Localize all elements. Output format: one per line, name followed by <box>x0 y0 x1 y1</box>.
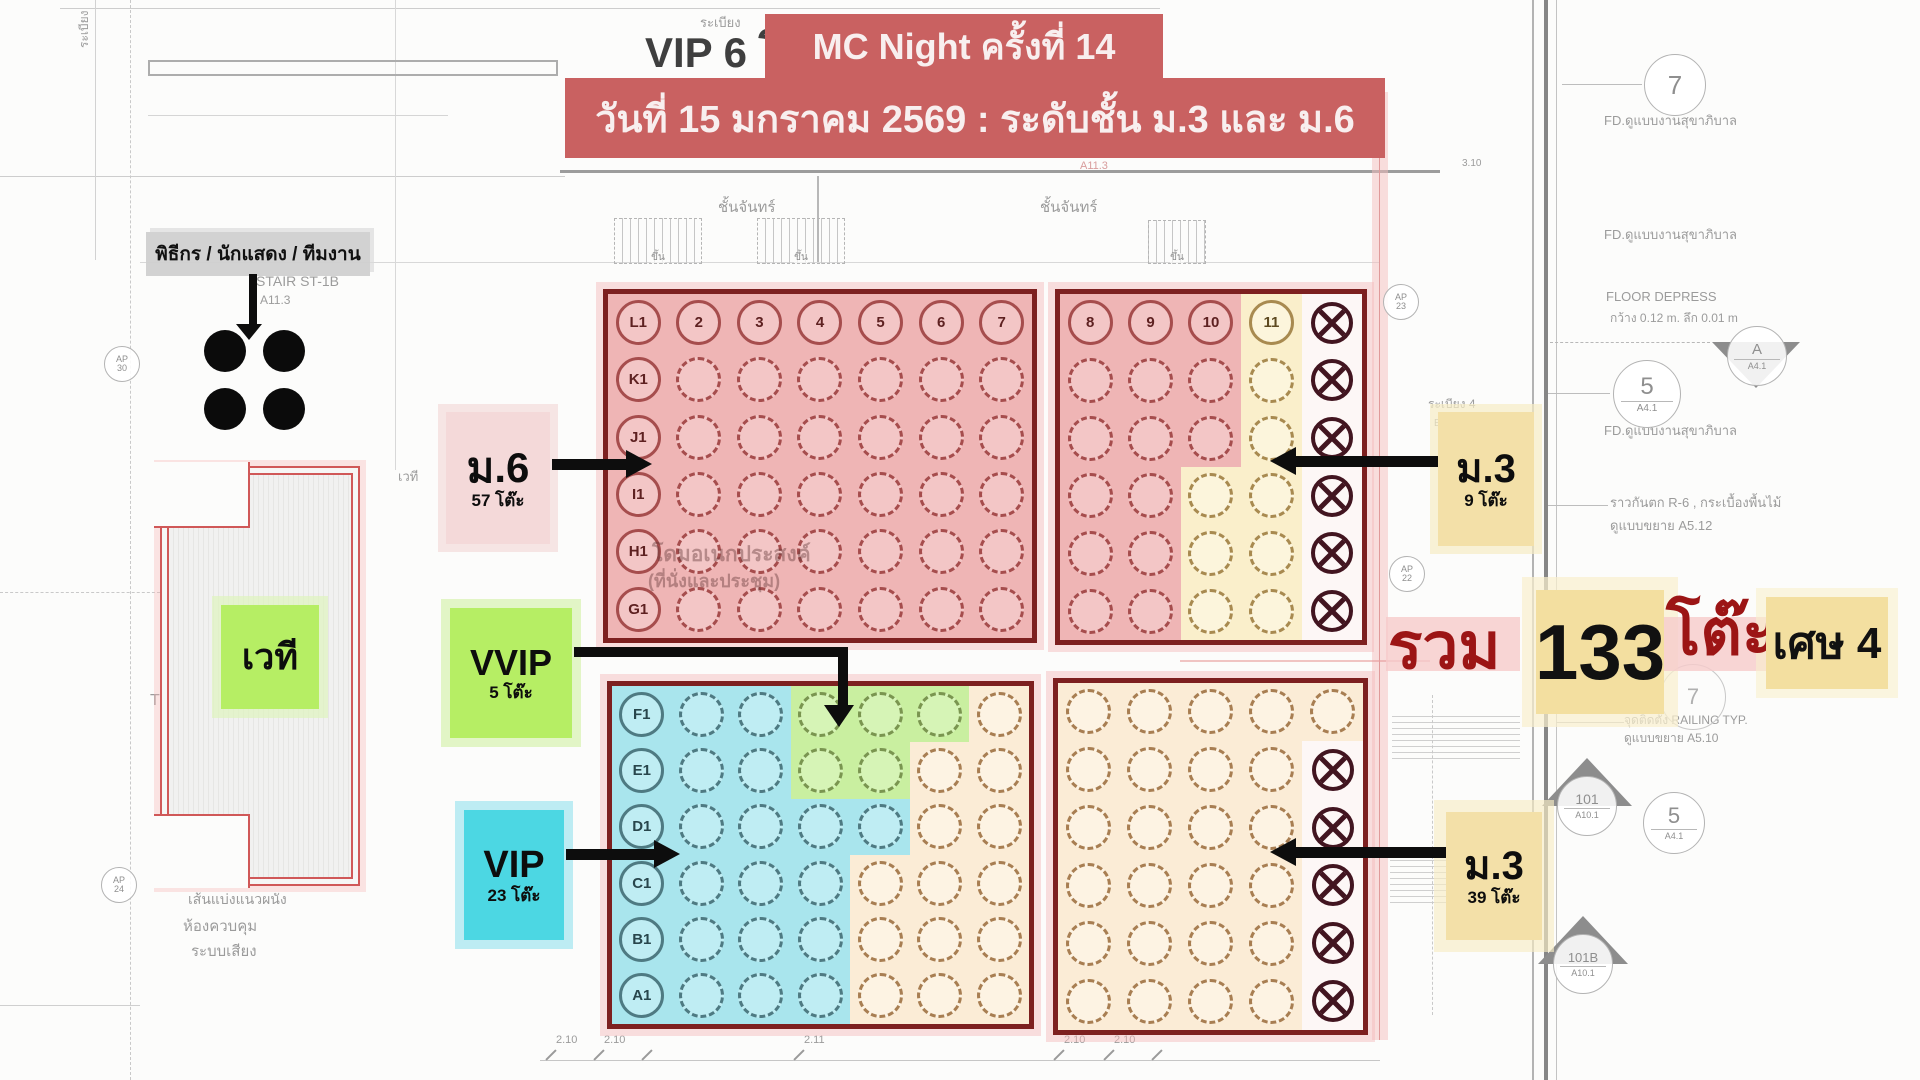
total-prefix: รวม <box>1388 610 1501 684</box>
seat <box>1312 980 1354 1022</box>
plan-line <box>0 1005 140 1006</box>
seat-circle <box>910 855 970 911</box>
seat-circle <box>672 799 732 855</box>
seat <box>798 861 843 906</box>
seat-circle <box>672 686 732 742</box>
seat <box>979 472 1024 517</box>
plan-line <box>540 1060 1380 1061</box>
seat-circle <box>672 911 732 967</box>
seat-4: 4 <box>790 294 851 351</box>
seat-label: 6 <box>937 314 945 331</box>
seat-circle <box>669 466 730 523</box>
seat <box>979 415 1024 460</box>
seat-circle <box>729 409 790 466</box>
seat <box>977 804 1022 849</box>
total-unit: โต๊ะ <box>1666 596 1776 670</box>
seat: I1 <box>616 472 661 517</box>
seat-circle <box>672 742 732 798</box>
vvip-title: VVIP <box>470 645 552 681</box>
m3-bottom-title: ม.3 <box>1464 846 1524 886</box>
seat <box>979 529 1024 574</box>
mc-team-text: พิธีกร / นักแสดง / ทีมงาน <box>155 245 360 264</box>
sep <box>1560 966 1605 967</box>
remainder-text: เศษ 4 <box>1773 608 1882 678</box>
seat: 9 <box>1128 300 1173 345</box>
seat <box>917 861 962 906</box>
seat-circle <box>1058 683 1119 741</box>
seat <box>1128 589 1173 634</box>
seat <box>1128 416 1173 461</box>
shape: 30 <box>117 364 127 373</box>
seat-circle <box>911 351 972 408</box>
seat-circle <box>1302 683 1363 741</box>
seat-circle <box>971 466 1032 523</box>
seat-5: 5 <box>850 294 911 351</box>
m3-bottom-arrow-shaft <box>1296 847 1446 858</box>
stair-box: ขึ้น <box>614 218 702 264</box>
seat-11: 11 <box>1241 294 1301 352</box>
seat <box>1127 863 1172 908</box>
seat <box>798 917 843 962</box>
seat-circle <box>729 466 790 523</box>
seat <box>676 415 721 460</box>
seat <box>797 587 842 632</box>
seat-label: G1 <box>628 601 648 618</box>
seat-circle <box>850 351 911 408</box>
m6-arrow-shaft <box>552 459 626 470</box>
seat <box>1249 531 1294 576</box>
fd-note: FD.ดูแบบงานสุขาภิบาล <box>1604 114 1737 128</box>
seat-circle <box>971 581 1032 638</box>
seat <box>738 973 783 1018</box>
seat-circle <box>731 968 791 1024</box>
plan-line <box>148 115 448 116</box>
seat: 5 <box>858 300 903 345</box>
seat-circle <box>1060 582 1120 640</box>
plan-line <box>556 60 558 76</box>
seat-crossed <box>1302 856 1363 914</box>
seat <box>798 804 843 849</box>
plan-line <box>0 592 160 593</box>
seat <box>919 357 964 402</box>
seat-circle <box>790 581 851 638</box>
seat <box>1066 689 1111 734</box>
plan-line <box>130 0 131 1080</box>
seat-label: J1 <box>630 429 647 446</box>
seat-circle <box>1241 683 1302 741</box>
dim-value: 2.10 <box>556 1034 577 1046</box>
seat: L1 <box>616 300 661 345</box>
seat-circle <box>1241 741 1302 799</box>
stage-notch <box>154 462 250 528</box>
seat <box>738 804 783 849</box>
seat <box>737 415 782 460</box>
m6-arrow-head <box>626 450 652 478</box>
seat-circle <box>1058 799 1119 857</box>
seat-circle <box>1181 467 1241 525</box>
seat: 8 <box>1068 300 1113 345</box>
seat-circle <box>850 686 910 742</box>
seat <box>1068 416 1113 461</box>
seat-circle <box>969 968 1029 1024</box>
seat-circle <box>1241 352 1301 410</box>
seat-circle <box>969 742 1029 798</box>
seat-circle <box>1241 582 1301 640</box>
ap-marker-30: AP30 <box>104 346 140 382</box>
seat-3: 3 <box>729 294 790 351</box>
seat-circle <box>971 351 1032 408</box>
shape: 5 <box>1640 375 1653 399</box>
vip6-underlay-text: VIP 6 โ <box>645 30 781 76</box>
seat <box>1128 358 1173 403</box>
seat-crossed <box>1302 467 1362 525</box>
stage-small-text: เวที <box>398 470 418 484</box>
seat <box>1311 417 1353 459</box>
seat-circle <box>791 968 851 1024</box>
seat-label: 9 <box>1146 314 1154 331</box>
seat <box>1249 589 1294 634</box>
seat: 3 <box>737 300 782 345</box>
seat-circle <box>1180 856 1241 914</box>
seat-circle <box>1060 409 1120 467</box>
seat <box>917 748 962 793</box>
seat-circle <box>969 911 1029 967</box>
seat: 11 <box>1249 300 1294 345</box>
control-room-text: ห้องควบคุม <box>183 919 257 936</box>
seating-block-top-right: 891011 <box>1055 289 1367 645</box>
plan-line <box>0 176 565 177</box>
stage-label: เวที <box>221 605 319 709</box>
seat <box>1068 358 1113 403</box>
seat-9: 9 <box>1120 294 1180 352</box>
m3-bottom-count: 39 โต๊ะ <box>1468 889 1521 906</box>
section-marker-5: 5A4.1 <box>1643 792 1705 854</box>
section-marker-101b: 101BA10.1 <box>1553 934 1613 994</box>
seat-crossed <box>1302 914 1363 972</box>
seat <box>1188 805 1233 850</box>
seat-circle <box>1060 467 1120 525</box>
seat <box>858 861 903 906</box>
performer-dot <box>263 388 305 430</box>
stage-notch <box>154 814 250 888</box>
performer-dot <box>263 330 305 372</box>
dim-value: 2.10 <box>604 1034 625 1046</box>
seat-circle <box>729 351 790 408</box>
seat-label: B1 <box>632 931 651 948</box>
seat <box>1311 302 1353 344</box>
vvip-count: 5 โต๊ะ <box>489 684 532 701</box>
seat-circle <box>850 855 910 911</box>
seat <box>738 748 783 793</box>
balcony-text-vertical: ระเบียง <box>78 11 91 49</box>
louver-hatch <box>1392 716 1520 764</box>
seat <box>738 861 783 906</box>
seat <box>1249 473 1294 518</box>
plan-line <box>560 170 1440 173</box>
shape: A10.1 <box>1571 969 1595 978</box>
seat <box>977 748 1022 793</box>
seat <box>1188 863 1233 908</box>
seat <box>737 357 782 402</box>
seat-label: 2 <box>695 314 703 331</box>
seat <box>1311 359 1353 401</box>
shape: 23 <box>1396 302 1406 311</box>
seat <box>977 917 1022 962</box>
seat-circle <box>1060 352 1120 410</box>
seat <box>1068 531 1113 576</box>
dim-tick <box>1103 1049 1114 1060</box>
total-number-box: 133 <box>1536 590 1664 714</box>
seat <box>738 917 783 962</box>
seat <box>1127 689 1172 734</box>
plan-line <box>148 60 150 76</box>
seat-circle <box>1119 914 1180 972</box>
seat <box>858 587 903 632</box>
seat-circle <box>850 968 910 1024</box>
sep <box>1621 401 1672 402</box>
seat <box>1312 749 1354 791</box>
seat <box>1249 863 1294 908</box>
seat-label: I1 <box>632 486 645 503</box>
seat-crossed <box>1302 582 1362 640</box>
leader-line <box>1562 84 1642 85</box>
dim-310: 3.10 <box>1462 158 1481 169</box>
seat <box>1188 921 1233 966</box>
seat-circle <box>1241 972 1302 1030</box>
seat-circle <box>1058 914 1119 972</box>
seat <box>1066 921 1111 966</box>
seat-A1: A1 <box>612 968 672 1024</box>
seat <box>1311 590 1353 632</box>
m3-top-arrow-shaft <box>1296 456 1438 467</box>
vvip-arrow-head <box>824 705 854 727</box>
seat <box>858 472 903 517</box>
seat-circle <box>790 466 851 523</box>
seat <box>1310 689 1355 734</box>
seat-circle <box>1119 683 1180 741</box>
a113-text-pink: A11.3 <box>1080 160 1108 172</box>
seat <box>797 357 842 402</box>
plan-line <box>395 0 396 470</box>
sep <box>1651 829 1698 830</box>
seat-circle <box>731 855 791 911</box>
section-marker-101: 101A10.1 <box>1557 776 1617 836</box>
seat <box>919 529 964 574</box>
seat-10: 10 <box>1181 294 1241 352</box>
seat-circle <box>731 799 791 855</box>
seat-circle <box>790 409 851 466</box>
shape: 7 <box>1668 72 1682 98</box>
seat-label: 10 <box>1203 314 1220 331</box>
seat-circle <box>1120 352 1180 410</box>
seat-circle <box>1241 467 1301 525</box>
seat <box>1128 531 1173 576</box>
event-date-grades: วันที่ 15 มกราคม 2569 : ระดับชั้น ม.3 แล… <box>595 88 1355 149</box>
seat <box>1066 863 1111 908</box>
seat-circle <box>969 855 1029 911</box>
plan-line <box>148 74 558 76</box>
seat <box>1311 475 1353 517</box>
seat <box>1127 747 1172 792</box>
seat-6: 6 <box>911 294 972 351</box>
seat <box>798 748 843 793</box>
seat-circle <box>850 799 910 855</box>
seat-circle <box>1058 856 1119 914</box>
seat <box>797 415 842 460</box>
m3-top-title: ม.3 <box>1456 449 1516 489</box>
seat <box>977 973 1022 1018</box>
seat <box>797 472 842 517</box>
seat-circle <box>791 911 851 967</box>
seat: E1 <box>619 748 664 793</box>
dim-tick <box>1151 1049 1162 1060</box>
plan-line <box>148 60 558 62</box>
seat-label: C1 <box>632 875 651 892</box>
seat <box>1188 689 1233 734</box>
seat: 6 <box>919 300 964 345</box>
seat-circle <box>1181 352 1241 410</box>
seat-label: E1 <box>633 762 651 779</box>
sep <box>1734 359 1779 360</box>
seat-circle <box>1058 972 1119 1030</box>
shape: 5 <box>1668 805 1680 827</box>
seat-circle <box>850 581 911 638</box>
stair-up-label: ขึ้น <box>794 253 808 263</box>
seat-circle <box>731 742 791 798</box>
seat: F1 <box>619 692 664 737</box>
section-marker-a: AA4.1 <box>1727 326 1787 386</box>
seat <box>1066 747 1111 792</box>
shape: A10.1 <box>1575 811 1599 820</box>
seat <box>919 587 964 632</box>
seat-circle <box>1180 972 1241 1030</box>
seat <box>858 804 903 849</box>
seat <box>858 415 903 460</box>
shape: 22 <box>1402 574 1412 583</box>
seat-circle <box>1180 799 1241 857</box>
dim-value: 2.11 <box>804 1034 825 1046</box>
seat <box>679 973 724 1018</box>
seat <box>858 357 903 402</box>
seat-circle <box>850 409 911 466</box>
seat <box>979 357 1024 402</box>
wall-line-text: เส้นแบ่งแนวผนัง <box>188 892 287 907</box>
stair-up-label: ขึ้น <box>651 253 665 263</box>
vip-title: VIP <box>483 846 544 884</box>
chan-text: ชั้นจันทร์ <box>718 200 775 217</box>
seat-label: L1 <box>630 314 648 331</box>
seat-circle <box>1181 582 1241 640</box>
grid-marker-7: 7 <box>1644 54 1706 116</box>
m3-top-arrow-head <box>1270 447 1296 475</box>
seat <box>1188 416 1233 461</box>
vip-label: VIP 23 โต๊ะ <box>464 810 564 940</box>
seat <box>917 917 962 962</box>
seat <box>917 692 962 737</box>
dim-tick <box>593 1049 604 1060</box>
seat-label: H1 <box>629 543 648 560</box>
m3-bottom-arrow-head <box>1270 838 1296 866</box>
seat <box>798 973 843 1018</box>
seat <box>858 692 903 737</box>
seat: 7 <box>979 300 1024 345</box>
vvip-arrow-shaft-v <box>838 647 848 707</box>
vvip-label: VVIP 5 โต๊ะ <box>450 608 572 738</box>
seat-circle <box>911 466 972 523</box>
seat <box>679 748 724 793</box>
seat <box>1188 589 1233 634</box>
seat-2: 2 <box>669 294 730 351</box>
seat <box>676 357 721 402</box>
seat <box>1188 979 1233 1024</box>
plan-line <box>60 8 1160 9</box>
seat-circle <box>1119 741 1180 799</box>
a113-text: A11.3 <box>260 294 290 307</box>
seat-label: 11 <box>1263 314 1279 331</box>
seat: A1 <box>619 973 664 1018</box>
seat-F1: F1 <box>612 686 672 742</box>
seat <box>1249 358 1294 403</box>
seat <box>858 529 903 574</box>
seat: 4 <box>797 300 842 345</box>
event-banner-line1: MC Night ครั้งที่ 14 <box>765 14 1163 78</box>
seat-circle <box>1241 525 1301 583</box>
seat-circle <box>910 911 970 967</box>
railing-note: ดูแบบขยาย A5.12 <box>1610 519 1712 533</box>
seat-circle <box>850 742 910 798</box>
stair-box: ขึ้น <box>757 218 845 264</box>
m6-count: 57 โต๊ะ <box>472 492 525 509</box>
shape: 101B <box>1568 951 1598 964</box>
seat <box>1127 805 1172 850</box>
seat <box>737 472 782 517</box>
seat-circle <box>1058 741 1119 799</box>
m3-top-count: 9 โต๊ะ <box>1464 492 1507 509</box>
vip-arrow-shaft <box>566 849 654 860</box>
seat-circle <box>669 351 730 408</box>
dim-tick <box>545 1049 556 1060</box>
seat <box>1249 689 1294 734</box>
remainder-box: เศษ 4 <box>1766 597 1888 689</box>
vip-count: 23 โต๊ะ <box>488 887 541 904</box>
shape: 24 <box>114 885 124 894</box>
seat-circle <box>1120 525 1180 583</box>
seat-circle <box>911 409 972 466</box>
seat-label: 8 <box>1086 314 1094 331</box>
stair-box: ขึ้น <box>1148 220 1206 264</box>
seat-circle <box>971 523 1032 580</box>
seat-circle <box>1060 525 1120 583</box>
seat-circle <box>1119 972 1180 1030</box>
plan-line <box>95 0 96 260</box>
seat-circle <box>1120 582 1180 640</box>
seat: 10 <box>1188 300 1233 345</box>
seat <box>858 917 903 962</box>
seat-L1: L1 <box>608 294 669 351</box>
shape: 101 <box>1575 792 1598 806</box>
shape: A4.1 <box>1665 832 1684 841</box>
seat <box>977 861 1022 906</box>
m3-top-label: ม.3 9 โต๊ะ <box>1438 412 1534 546</box>
event-banner-line2: วันที่ 15 มกราคม 2569 : ระดับชั้น ม.3 แล… <box>565 78 1385 158</box>
seat <box>1068 473 1113 518</box>
ap-marker-23: AP23 <box>1383 284 1419 320</box>
dim-value: 2.10 <box>1064 1034 1085 1046</box>
seat-circle <box>969 799 1029 855</box>
seat-circle <box>910 742 970 798</box>
seat <box>1311 532 1353 574</box>
balcony4-text: ระเบียง 4 <box>1428 398 1476 411</box>
